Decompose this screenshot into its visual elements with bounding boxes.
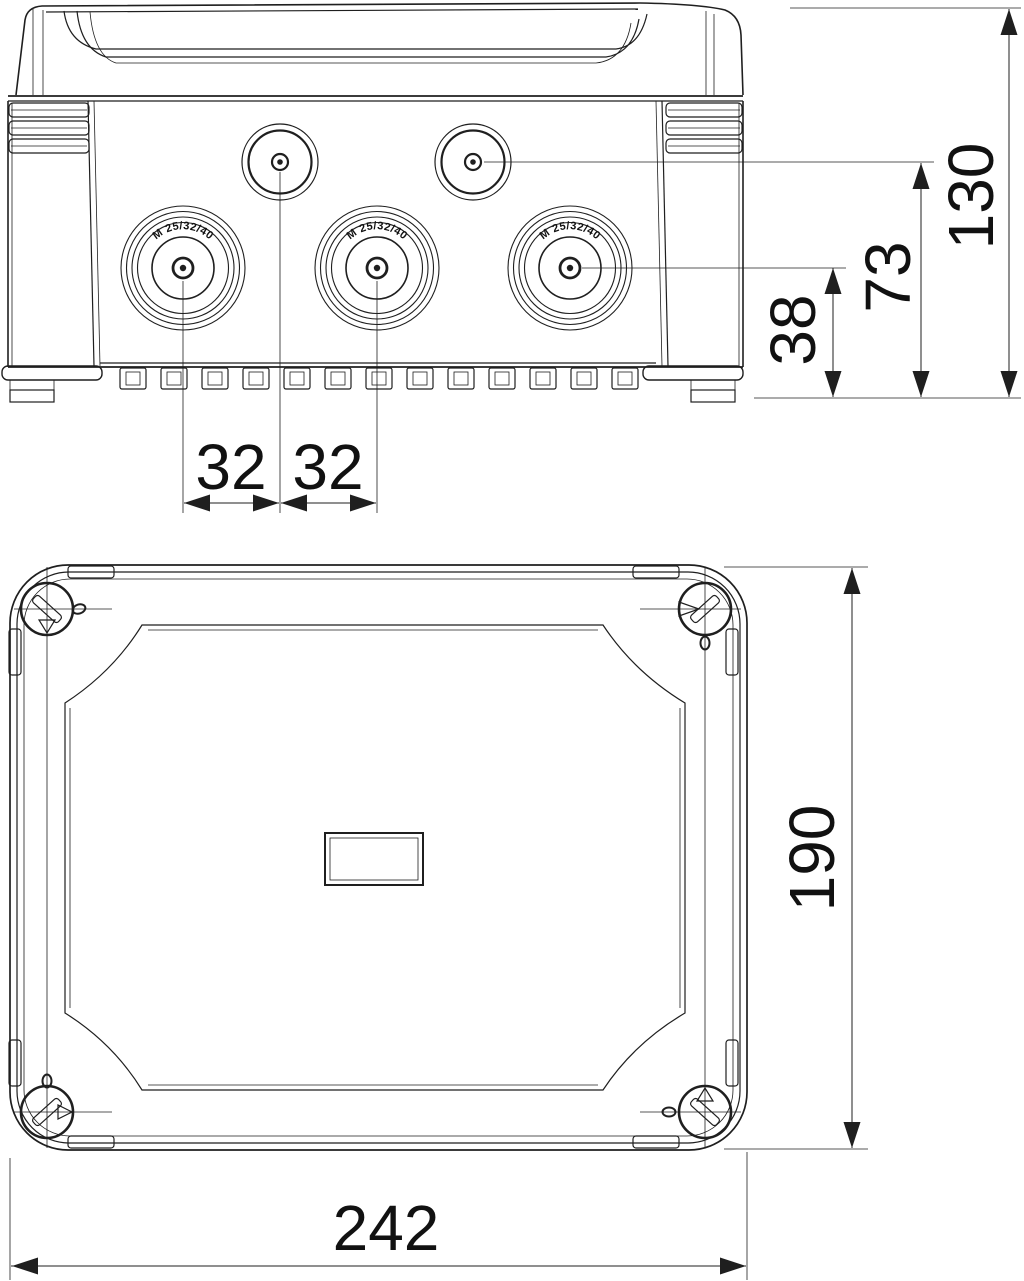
snap-tab [325,368,351,389]
technical-drawing-page: M 25/32/40 [0,0,1024,1281]
arrowhead [913,163,930,189]
box-shell-line [24,579,733,1136]
arrowhead [825,371,842,397]
dim-label-32-right: 32 [292,431,363,503]
snap-tab [489,368,515,389]
plan-view: 190 242 [9,565,868,1280]
arrowhead [1001,9,1018,35]
dim-label-130: 130 [935,143,1007,250]
edge-latches [9,566,738,1148]
dimension-32-left: 32 [184,431,279,512]
arrowhead [720,1258,746,1275]
dim-label-242: 242 [333,1192,440,1264]
housing-body [2,101,743,402]
dimension-73: 73 [852,163,930,397]
snap-tab [407,368,433,389]
snap-tab-row [120,368,638,389]
lid-recess-inner-lines [70,630,680,1085]
technical-drawing: M 25/32/40 [0,0,1024,1281]
snap-tab [120,368,146,389]
snap-tab [202,368,228,389]
dimension-130: 130 [935,9,1018,397]
right-foot [643,366,743,402]
box-outer-outline [10,565,747,1150]
arrowhead [844,1122,861,1148]
lid [8,3,743,101]
arrowhead [12,1258,38,1275]
snap-tab [366,368,392,389]
dim-label-190: 190 [776,805,848,912]
arrowhead [825,268,842,294]
right-corner-ribs [666,103,742,153]
arrowhead [844,568,861,594]
snap-tab [530,368,556,389]
label-plate [325,833,423,885]
arrowhead [913,371,930,397]
front-elevation-view: 130 73 38 32 32 [2,3,1021,513]
dim-label-32-left: 32 [195,431,266,503]
left-foot [2,366,102,402]
dimension-38: 38 [757,268,842,397]
dim-label-38: 38 [757,294,829,365]
snap-tab [243,368,269,389]
box-inner-outline [17,572,740,1143]
dim-label-73: 73 [852,241,924,312]
dimension-190: 190 [724,567,868,1149]
left-corner-ribs [9,103,89,153]
lid-recess-panel [65,625,685,1090]
snap-tab [448,368,474,389]
snap-tab [284,368,310,389]
dimension-242: 242 [10,1152,747,1280]
screw-center-lines [14,567,741,1148]
snap-tab [571,368,597,389]
dimension-32-right: 32 [281,431,376,512]
snap-tab [612,368,638,389]
arrowhead [1001,371,1018,397]
